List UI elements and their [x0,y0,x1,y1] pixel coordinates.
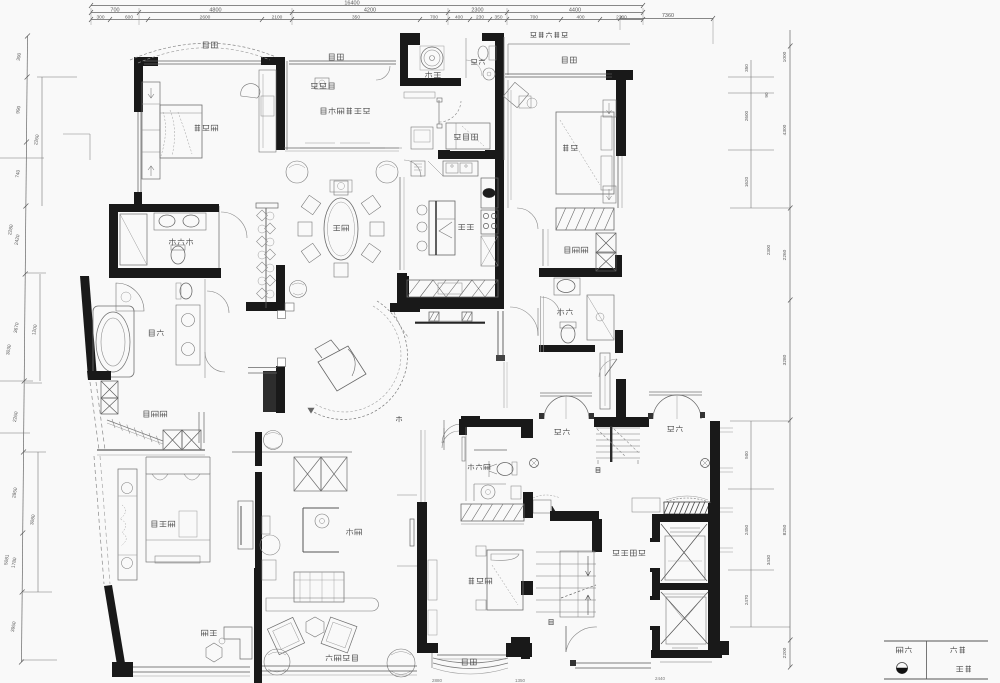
svg-text:4300: 4300 [782,124,788,135]
svg-text:7360: 7360 [662,13,674,19]
svg-text:16400: 16400 [344,1,359,7]
svg-text:230: 230 [476,14,484,20]
svg-text:700: 700 [430,14,438,20]
svg-text:4800: 4800 [209,7,221,13]
svg-text:350: 350 [744,64,749,72]
svg-text:2440: 2440 [655,676,666,681]
svg-text:600: 600 [125,14,133,20]
svg-text:2450: 2450 [744,524,749,535]
svg-text:8250: 8250 [782,524,788,535]
svg-text:3280: 3280 [782,354,788,365]
svg-text:2880: 2880 [432,678,443,683]
svg-text:500: 500 [744,451,749,459]
svg-text:2600: 2600 [744,110,749,121]
svg-text:2300: 2300 [766,244,771,255]
svg-text:1620: 1620 [744,176,749,187]
svg-text:2300: 2300 [471,7,483,13]
svg-text:2600: 2600 [200,14,211,20]
svg-text:2100: 2100 [272,14,283,20]
svg-text:2200: 2200 [782,647,788,658]
svg-text:90: 90 [764,92,769,98]
svg-text:300: 300 [96,14,104,20]
svg-text:350: 350 [494,14,502,20]
svg-text:400: 400 [576,14,584,20]
svg-text:2260: 2260 [782,249,788,260]
svg-text:700: 700 [110,7,119,13]
svg-text:700: 700 [530,14,538,20]
svg-text:3430: 3430 [766,554,771,565]
svg-text:4200: 4200 [364,7,376,13]
svg-text:2300: 2300 [616,14,627,20]
svg-text:400: 400 [455,14,463,20]
svg-text:1350: 1350 [515,678,526,683]
svg-text:1000: 1000 [782,51,788,62]
svg-text:4400: 4400 [569,7,581,13]
svg-text:2470: 2470 [744,594,749,605]
svg-text:350: 350 [352,14,360,20]
